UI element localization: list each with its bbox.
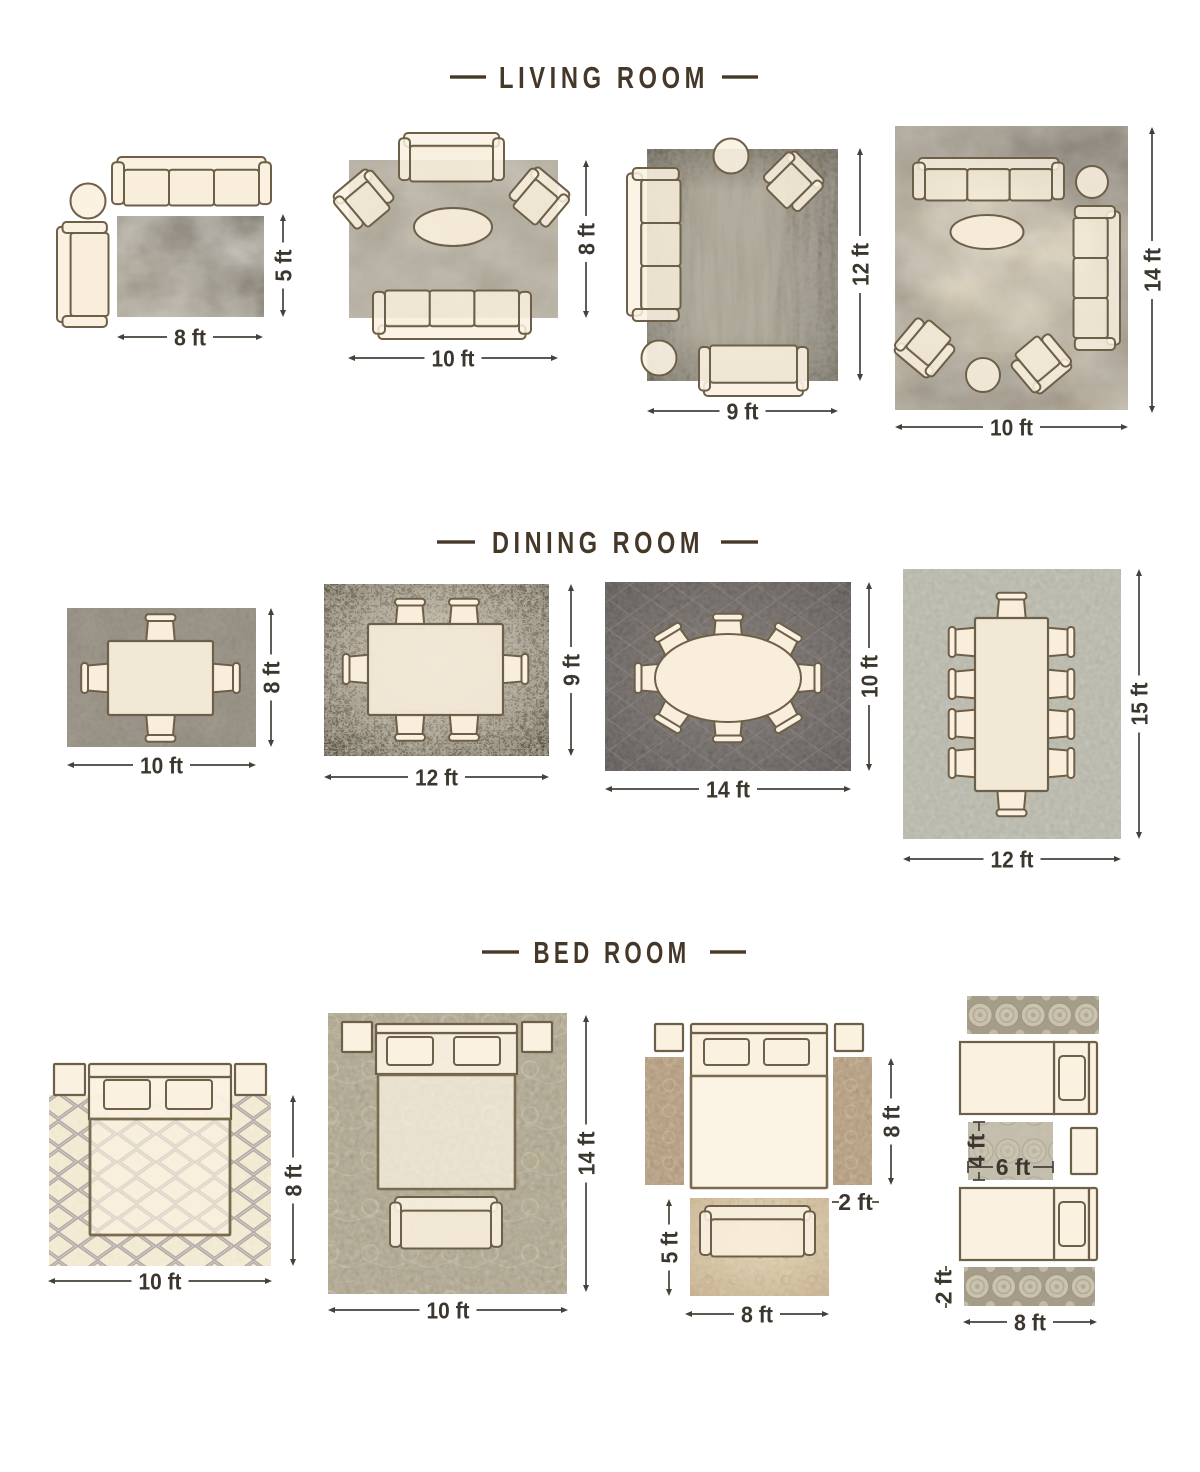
svg-text:10 ft: 10 ft [140, 752, 183, 778]
svg-text:12 ft: 12 ft [991, 846, 1034, 872]
svg-text:10 ft: 10 ft [427, 1297, 470, 1323]
svg-text:8 ft: 8 ft [258, 661, 284, 693]
svg-text:14 ft: 14 ft [706, 776, 750, 802]
svg-text:LIVING ROOM: LIVING ROOM [499, 60, 709, 95]
svg-text:9 ft: 9 ft [558, 654, 584, 686]
svg-text:8 ft: 8 ft [174, 324, 206, 350]
svg-text:2 ft: 2 ft [838, 1189, 873, 1215]
svg-text:14 ft: 14 ft [1139, 248, 1165, 292]
svg-text:DINING ROOM: DINING ROOM [492, 525, 704, 560]
svg-text:BED ROOM: BED ROOM [534, 935, 691, 970]
svg-text:6 ft: 6 ft [996, 1154, 1031, 1180]
svg-text:12 ft: 12 ft [415, 764, 458, 790]
svg-text:8 ft: 8 ft [878, 1105, 904, 1137]
svg-text:10 ft: 10 ft [990, 414, 1033, 440]
svg-text:5 ft: 5 ft [270, 249, 296, 281]
svg-text:10 ft: 10 ft [432, 345, 475, 371]
svg-text:8 ft: 8 ft [741, 1301, 773, 1327]
svg-text:9 ft: 9 ft [727, 398, 759, 424]
svg-text:2 ft: 2 ft [930, 1269, 956, 1304]
svg-text:8 ft: 8 ft [1014, 1309, 1046, 1335]
svg-text:8 ft: 8 ft [280, 1164, 306, 1196]
svg-text:15 ft: 15 ft [1126, 682, 1152, 725]
svg-text:10 ft: 10 ft [856, 655, 882, 698]
svg-text:8 ft: 8 ft [573, 223, 599, 255]
svg-text:10 ft: 10 ft [139, 1268, 182, 1294]
svg-text:14 ft: 14 ft [573, 1131, 599, 1175]
svg-text:5 ft: 5 ft [656, 1231, 682, 1263]
svg-text:12 ft: 12 ft [847, 243, 873, 286]
